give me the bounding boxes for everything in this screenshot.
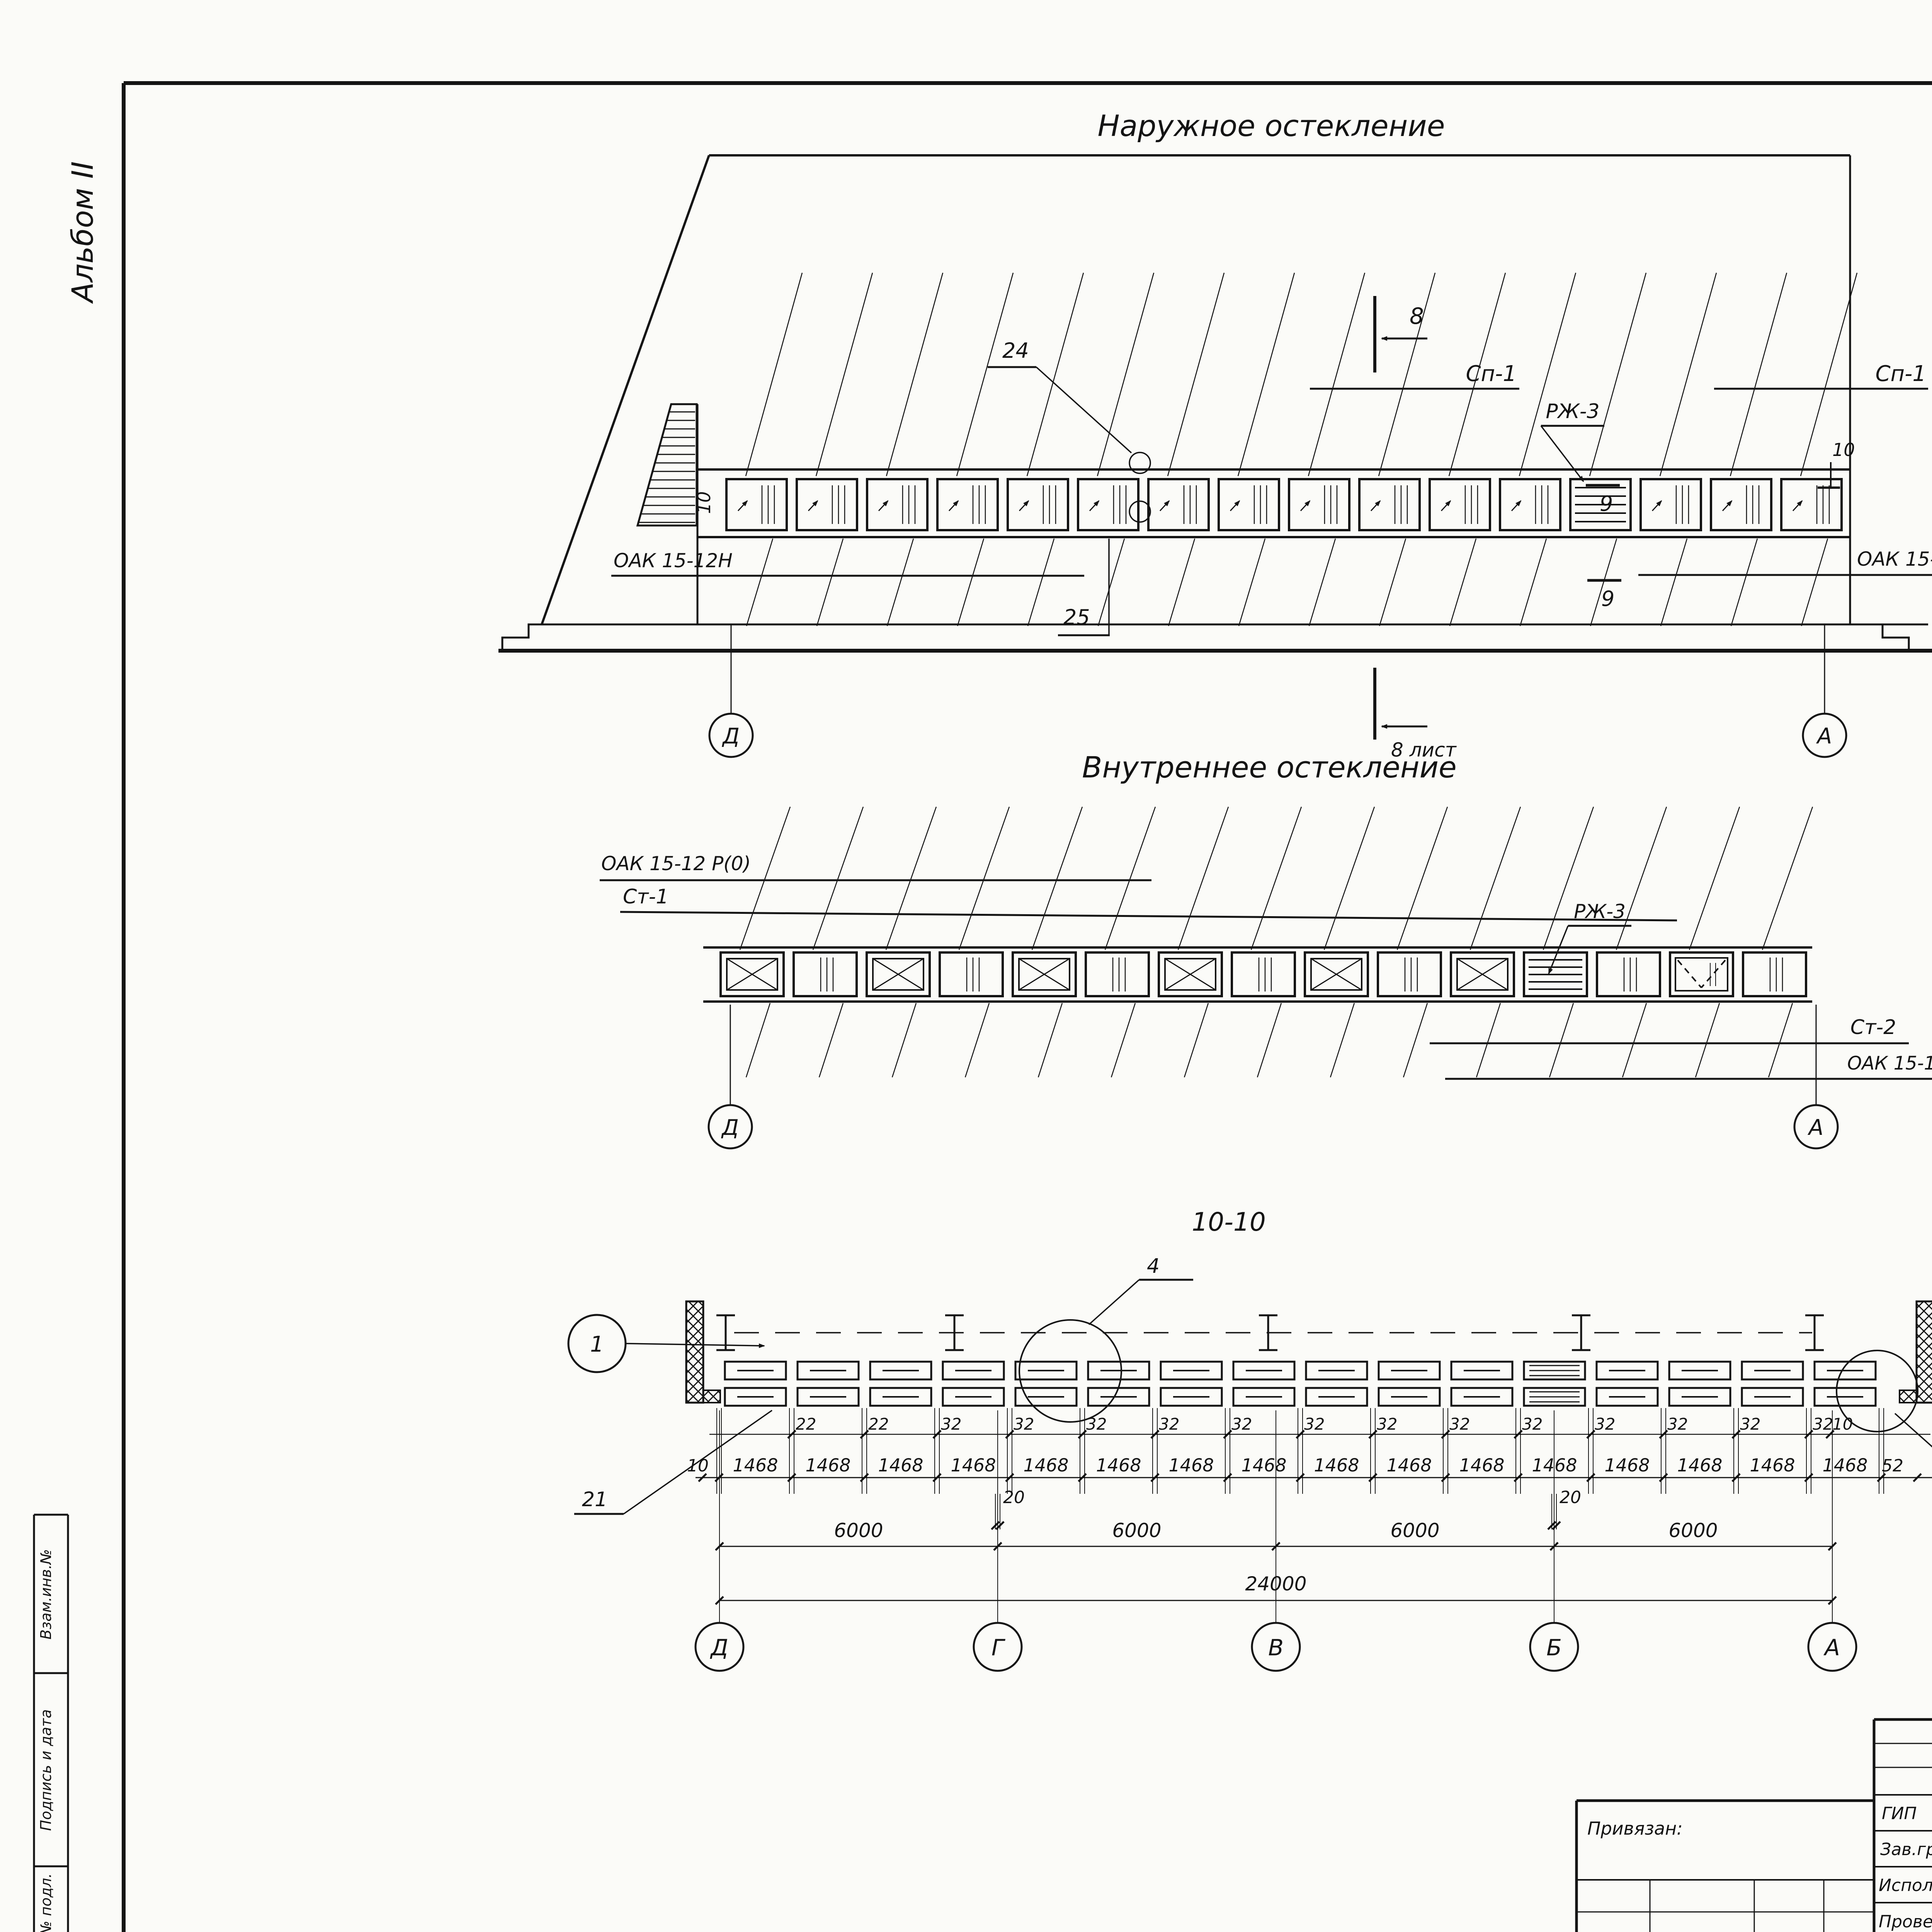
- small-dim: 32: [1377, 1415, 1397, 1434]
- axis-letter: А: [1823, 1634, 1840, 1661]
- gap-dim: 52: [1882, 1456, 1903, 1476]
- small-dim: 32: [1304, 1415, 1325, 1434]
- panel-dim: 1468: [733, 1455, 778, 1476]
- role-label: Исполн.: [1879, 1876, 1932, 1895]
- callout-24: 24: [1002, 338, 1029, 363]
- small-dim: 32: [1159, 1415, 1179, 1434]
- panel-dim: 1468: [1241, 1455, 1286, 1476]
- binding-label: Привязан:: [1587, 1818, 1683, 1839]
- drawing2-title: Внутреннее остекление: [1082, 750, 1457, 784]
- small-dim: 32: [1014, 1415, 1034, 1434]
- wall-right: [1917, 1301, 1932, 1403]
- bay-dim: 6000: [1390, 1519, 1439, 1542]
- mark-sp1-left: Сп-1: [1466, 361, 1517, 386]
- callout-4: 4: [1147, 1255, 1160, 1278]
- dim-10-left: 10: [694, 491, 714, 514]
- stamp-cell-label: Подпись и дата: [37, 1709, 54, 1831]
- mark-rzh3-2: РЖ-3: [1574, 900, 1626, 923]
- mark-rzh3: РЖ-3: [1546, 400, 1599, 423]
- panel-dim: 1468: [1023, 1455, 1068, 1476]
- mark-oak-bottom: ОАК 15-12 Н(0): [1847, 1053, 1932, 1074]
- panel-dim: 1468: [1314, 1455, 1359, 1476]
- callout-25: 25: [1063, 605, 1090, 629]
- drawing1-title: Наружное остекление: [1098, 109, 1445, 143]
- panel-dim: 1468: [1604, 1455, 1650, 1476]
- panel-dim: 1468: [1677, 1455, 1722, 1476]
- mark-oak-left: ОАК 15-12Н: [614, 549, 733, 572]
- mark-oak-top: ОАК 15-12 Р(0): [601, 852, 751, 875]
- panel-dim: 1468: [951, 1455, 996, 1476]
- small-dim: 32: [1740, 1415, 1760, 1434]
- panel-dim: 1468: [1822, 1455, 1867, 1476]
- axis-letter: Д: [709, 1634, 728, 1661]
- small-dim: 22: [796, 1415, 816, 1434]
- panel-dim: 1468: [1386, 1455, 1432, 1476]
- small-dim: 22: [868, 1415, 889, 1434]
- axis-letter: Д: [721, 724, 740, 749]
- panel-dim: 1468: [1168, 1455, 1214, 1476]
- bay-dim: 6000: [834, 1519, 883, 1542]
- stamp-cell-label: Инв.№ подл.: [37, 1873, 54, 1932]
- detail-circle-1-label: 1: [590, 1332, 604, 1357]
- mark-st1: Ст-1: [623, 885, 668, 908]
- axis-letter: А: [1816, 724, 1832, 749]
- joint-dim: 20: [1560, 1488, 1581, 1507]
- small-dim: 32: [1231, 1415, 1252, 1434]
- dim-10-right: 10: [1832, 439, 1855, 460]
- role-label: ГИП: [1882, 1804, 1917, 1823]
- role-label: Провер.: [1879, 1912, 1932, 1932]
- album-label: Альбом II: [65, 161, 100, 304]
- mark-oak-right: ОАК 15-12Н: [1857, 548, 1932, 570]
- joint-dim: 20: [1003, 1488, 1025, 1507]
- section9-label-top: 9: [1600, 492, 1613, 516]
- panel-dim: 1468: [1459, 1455, 1504, 1476]
- small-dim: 32: [1595, 1415, 1615, 1434]
- section8-label-top: 8: [1410, 303, 1424, 329]
- bay-dim: 6000: [1112, 1519, 1161, 1542]
- bay-dim: 6000: [1668, 1519, 1718, 1542]
- small-dim: 32: [1086, 1415, 1107, 1434]
- wall-left-foot: [703, 1390, 720, 1403]
- paper-background: [0, 0, 1932, 1932]
- small-dim: 32: [1449, 1415, 1470, 1434]
- panel-dim: 1468: [805, 1455, 850, 1476]
- small-dim: 32: [941, 1415, 961, 1434]
- small-dim: 32: [1522, 1415, 1543, 1434]
- panel-dim: 1468: [878, 1455, 923, 1476]
- axis-letter: Г: [992, 1634, 1006, 1661]
- section9-label-bottom: 9: [1601, 587, 1614, 611]
- small-dim: 10: [1832, 1415, 1853, 1434]
- mark-st2: Ст-2: [1850, 1016, 1896, 1039]
- gap-dim: 10: [687, 1456, 709, 1476]
- panel-dim: 1468: [1096, 1455, 1141, 1476]
- stamp-cell-label: Взам.инв.№: [37, 1549, 54, 1639]
- blueprint-sheet: 36 Альбом II Взам.инв.№ Подпись и дата И…: [0, 0, 1932, 1932]
- panel-dim: 1468: [1750, 1455, 1795, 1476]
- wall-right-foot: [1900, 1390, 1917, 1403]
- small-dim: 32: [1813, 1415, 1833, 1434]
- wall-left: [686, 1301, 703, 1403]
- role-label: Зав.гр.: [1880, 1840, 1932, 1859]
- axis-letter: В: [1268, 1634, 1284, 1661]
- axis-letter: А: [1808, 1115, 1823, 1140]
- axis-letter: Д: [721, 1115, 739, 1140]
- axis-letter: Б: [1546, 1634, 1562, 1661]
- small-dim: 32: [1667, 1415, 1688, 1434]
- callout-21: 21: [582, 1488, 607, 1511]
- section-title: 10-10: [1192, 1207, 1266, 1237]
- mark-sp1-right: Сп-1: [1875, 361, 1926, 386]
